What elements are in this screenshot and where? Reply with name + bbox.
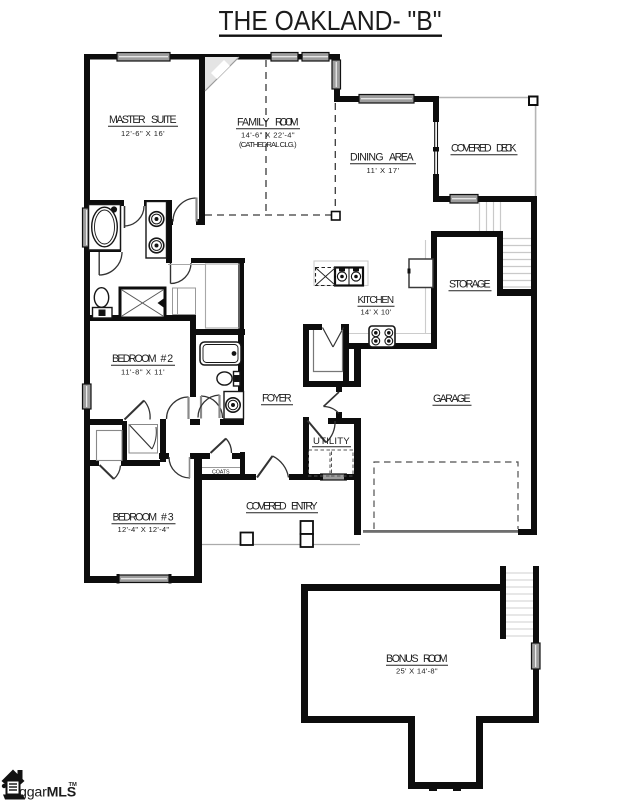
svg-text:KITCHEN: KITCHEN <box>358 295 395 306</box>
svg-text:ggarMLS: ggarMLS <box>19 785 76 800</box>
svg-text:11' X 17': 11' X 17' <box>367 166 400 175</box>
svg-text:(CATHEDRAL CLG.): (CATHEDRAL CLG.) <box>239 140 297 149</box>
svg-text:SUITE: SUITE <box>151 114 177 126</box>
svg-text:12'-6" X 16': 12'-6" X 16' <box>121 129 165 138</box>
svg-text:BONUS: BONUS <box>386 653 419 665</box>
svg-text:STORAGE: STORAGE <box>449 279 491 291</box>
svg-text:MASTER: MASTER <box>109 114 146 126</box>
svg-text:25' X 14'-8": 25' X 14'-8" <box>396 667 438 676</box>
svg-text:12'-4" X 12'-4": 12'-4" X 12'-4" <box>118 525 170 534</box>
svg-text:14'-6" X 22'-4": 14'-6" X 22'-4" <box>241 131 295 140</box>
svg-text:FOYER: FOYER <box>262 393 292 405</box>
svg-text:COVERED: COVERED <box>451 143 492 155</box>
svg-text:THE OAKLAND- "B": THE OAKLAND- "B" <box>219 5 442 36</box>
svg-text:ROOM: ROOM <box>423 653 448 665</box>
svg-text:#3: #3 <box>161 512 174 524</box>
svg-text:COATS: COATS <box>212 470 230 476</box>
svg-text:FAMILY: FAMILY <box>237 117 270 129</box>
svg-text:AREA: AREA <box>389 152 415 164</box>
svg-text:14' X 10': 14' X 10' <box>361 308 392 317</box>
svg-text:COVERED: COVERED <box>246 501 287 513</box>
svg-text:TM: TM <box>69 782 78 788</box>
svg-text:DECK: DECK <box>496 143 517 155</box>
svg-text:ROOM: ROOM <box>275 117 299 129</box>
svg-text:#2: #2 <box>161 353 174 365</box>
svg-text:GARAGE: GARAGE <box>433 393 471 405</box>
svg-text:DINING: DINING <box>350 152 384 164</box>
svg-text:BEDROOM: BEDROOM <box>112 353 157 365</box>
svg-text:ENTRY: ENTRY <box>291 501 318 513</box>
svg-text:11'-8" X 11': 11'-8" X 11' <box>121 368 165 377</box>
svg-text:UTILITY: UTILITY <box>313 436 350 447</box>
svg-text:BEDROOM: BEDROOM <box>113 512 158 524</box>
